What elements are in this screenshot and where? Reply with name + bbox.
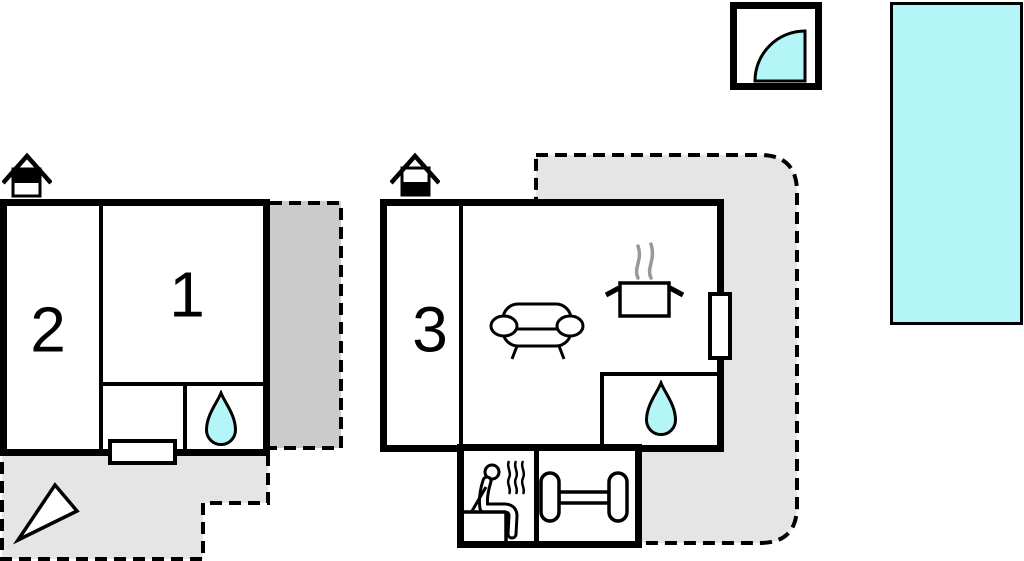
stairs-arrow-icon [10,478,85,548]
steam-icon [515,461,517,494]
wall-hall-bath-left [183,384,187,452]
floor-plan-canvas: 2 1 3 [0,0,1024,561]
room2-label: 2 [30,297,66,361]
terrace-door-right [708,292,732,360]
cooking-pot-icon [600,240,692,325]
wall-room3-living [459,204,463,448]
wall-bath-main-top [600,372,720,376]
steam-icon [522,461,524,494]
shower-quarter-icon [737,9,815,83]
water-drop-icon [204,390,238,448]
covered-terrace-fill [270,201,341,448]
house-upper-floor-icon [2,150,52,198]
shower-box [730,2,822,90]
water-drop-icon [644,380,678,438]
entrance-door-left [108,439,177,465]
steam-icon [637,246,640,278]
swimming-pool [890,2,1023,325]
steam-icon [650,244,653,278]
sauna-person-icon [460,455,540,545]
sofa-icon [489,298,587,362]
wall-room2-room1 [99,204,103,449]
house-ground-floor-icon [390,150,440,198]
wall-bath-main-left [600,372,604,448]
dumbbell-icon [538,468,630,526]
room3-label: 3 [412,297,448,361]
steam-icon [508,461,510,494]
room1-label: 1 [169,262,205,326]
